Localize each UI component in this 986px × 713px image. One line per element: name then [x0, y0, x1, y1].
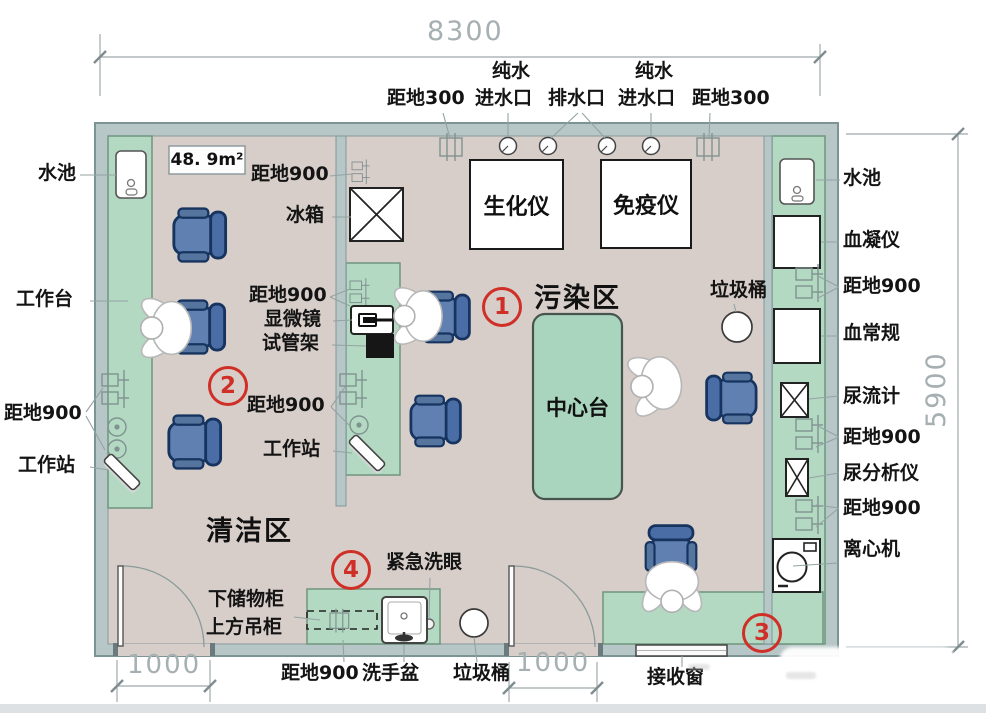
label-height900-r1: 距地900 — [843, 277, 921, 297]
watermark-smudge — [688, 664, 710, 670]
area-label: 48. 9m² — [169, 146, 245, 174]
zone-marker-3: 3 — [742, 613, 782, 653]
tube-rack-icon — [366, 334, 394, 358]
coagulation-analyzer-icon — [774, 216, 820, 268]
label-uroflow: 尿流计 — [843, 387, 900, 407]
label-centrifuge: 离心机 — [843, 540, 900, 560]
label-height900-mid1: 距地900 — [249, 286, 327, 306]
zone-clean: 清洁区 — [206, 509, 293, 548]
label-height300-right: 距地300 — [692, 89, 770, 109]
label-worktable: 工作台 — [16, 290, 73, 310]
trash-can-icon — [722, 312, 752, 342]
hand-basin-icon — [382, 597, 427, 643]
label-pure-water-2: 纯水 — [635, 62, 673, 82]
chair — [411, 396, 461, 447]
label-fridge: 冰箱 — [286, 206, 324, 226]
label-water-inlet-2: 进水口 — [618, 89, 675, 109]
label-trash-right: 垃圾桶 — [710, 281, 767, 301]
fridge-icon — [350, 188, 403, 241]
microscope-icon — [351, 306, 393, 334]
label-eyewash: 紧急洗眼 — [386, 553, 462, 573]
label-microscope: 显微镜 — [264, 310, 321, 330]
zone-contaminated: 污染区 — [534, 276, 621, 315]
label-center-bench: 中心台 — [533, 314, 622, 499]
label-receiving-window: 接收窗 — [647, 668, 704, 688]
receiving-window-icon — [636, 645, 727, 656]
dim-door-middle: 1000 — [516, 648, 590, 678]
label-height900-r3: 距地900 — [843, 499, 921, 519]
label-pure-water-1: 纯水 — [492, 62, 530, 82]
label-tube-rack: 试管架 — [262, 334, 319, 354]
label-drain-outlet: 排水口 — [548, 89, 605, 109]
label-workstation-mid: 工作站 — [263, 440, 320, 460]
label-height900-r2: 距地900 — [843, 428, 921, 448]
dim-door-left: 1000 — [127, 650, 201, 680]
trash-can-icon — [460, 609, 488, 637]
right-partition-wall — [764, 136, 772, 644]
chair — [169, 416, 221, 469]
label-immuno-analyzer: 免疫仪 — [601, 160, 691, 248]
label-sink-right: 水池 — [843, 169, 881, 189]
receiving-desk — [603, 592, 823, 644]
dim-right-height: 5900 — [921, 351, 952, 428]
page-bottom-strip — [0, 704, 986, 713]
label-height900-top: 距地900 — [251, 165, 329, 185]
label-urine-analyzer: 尿分析仪 — [843, 464, 919, 484]
uroflow-meter-icon — [781, 383, 808, 417]
label-workstation-left: 工作站 — [18, 456, 75, 476]
label-height300-left: 距地300 — [387, 89, 465, 109]
watermark-smudge — [786, 672, 816, 679]
zone-marker-4: 4 — [331, 550, 371, 590]
label-blood-routine: 血常规 — [843, 324, 900, 344]
chair — [707, 373, 757, 424]
blood-routine-icon — [774, 309, 820, 363]
zone-marker-1: 1 — [482, 287, 522, 327]
label-biochem-analyzer: 生化仪 — [470, 160, 563, 249]
label-coagulation: 血凝仪 — [843, 231, 900, 251]
label-trash-bottom: 垃圾桶 — [453, 664, 510, 684]
label-height900-bottom: 距地900 — [281, 664, 359, 684]
dim-top-width: 8300 — [427, 16, 504, 47]
label-upper-cabinet: 上方吊柜 — [206, 618, 282, 638]
sink-left-icon — [116, 151, 146, 198]
label-hand-basin: 洗手盆 — [362, 664, 419, 684]
chair — [174, 209, 226, 262]
label-lower-cabinet: 下储物柜 — [208, 590, 284, 610]
floorplan-page: 8300 5900 1000 1000 48. 9m² 污染区 清洁区 1 2 … — [0, 0, 986, 713]
sink-right-icon — [780, 159, 814, 204]
label-height900-left: 距地900 — [4, 404, 82, 424]
zone-marker-2: 2 — [208, 366, 248, 406]
urine-analyzer-icon — [786, 459, 808, 496]
label-water-inlet-1: 进水口 — [475, 89, 532, 109]
label-height900-mid2: 距地900 — [247, 396, 325, 416]
label-sink-left: 水池 — [38, 164, 76, 184]
